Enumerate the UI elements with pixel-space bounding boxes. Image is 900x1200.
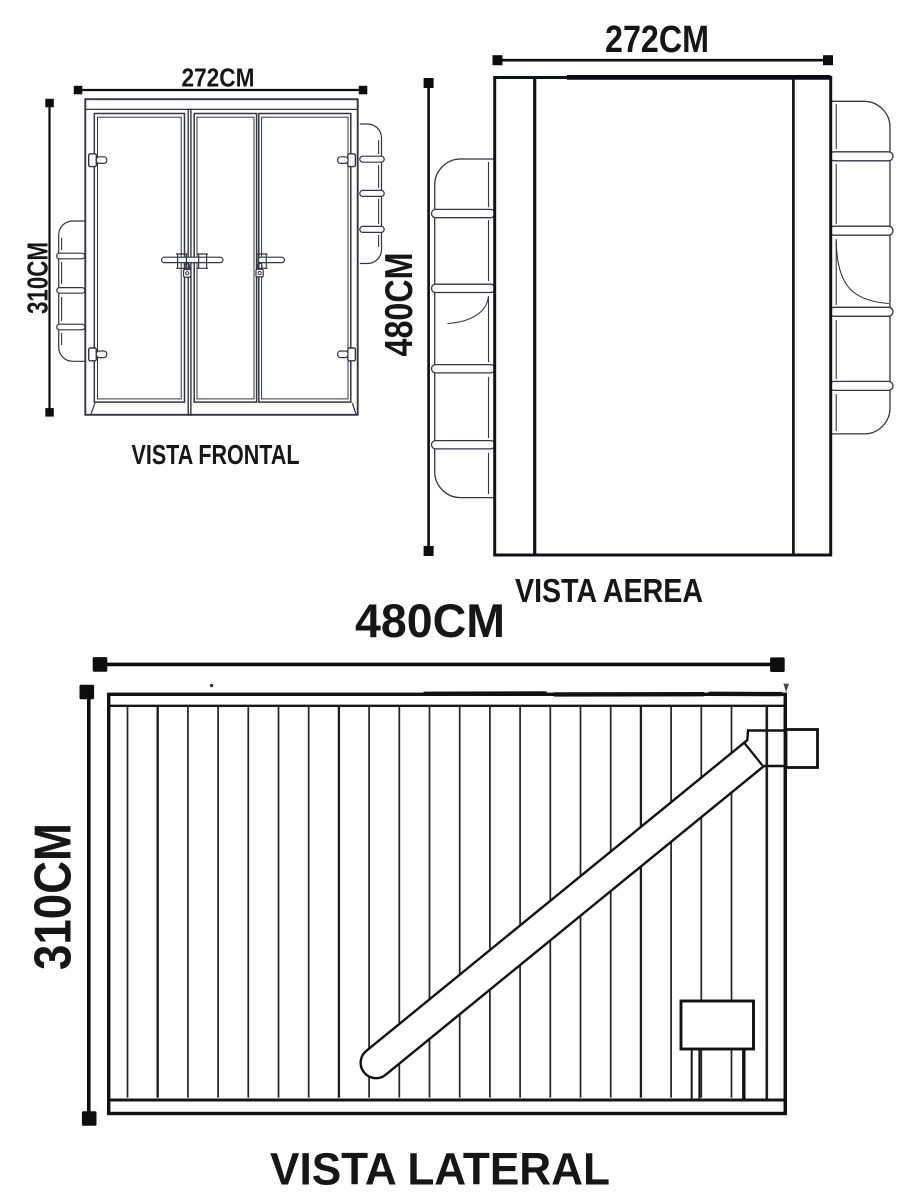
svg-text:VISTA LATERAL: VISTA LATERAL xyxy=(270,1144,610,1195)
svg-text:310CM: 310CM xyxy=(25,823,83,970)
svg-text:480CM: 480CM xyxy=(378,253,421,357)
svg-text:310CM: 310CM xyxy=(23,242,55,314)
svg-text:VISTA AEREA: VISTA AEREA xyxy=(515,572,703,609)
svg-text:VISTA FRONTAL: VISTA FRONTAL xyxy=(132,439,300,470)
svg-text:480CM: 480CM xyxy=(355,595,505,648)
svg-text:272CM: 272CM xyxy=(605,19,709,61)
svg-text:272CM: 272CM xyxy=(182,63,255,93)
